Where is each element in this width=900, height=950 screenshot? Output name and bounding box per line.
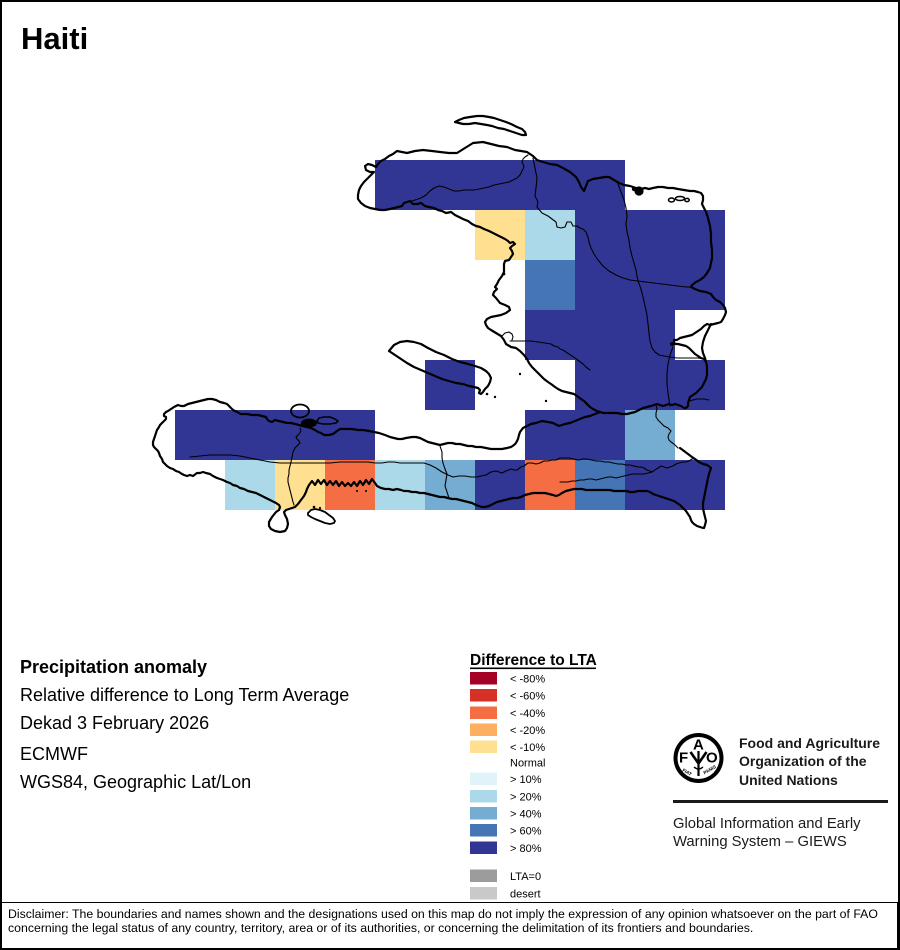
svg-text:desert: desert (510, 889, 541, 901)
svg-text:< -40%: < -40% (510, 708, 545, 720)
svg-text:> 40%: > 40% (510, 809, 542, 821)
svg-text:> 60%: > 60% (510, 826, 542, 838)
svg-text:O: O (706, 750, 718, 767)
svg-text:< -20%: < -20% (510, 725, 545, 737)
svg-text:< -60%: < -60% (510, 691, 545, 703)
svg-text:F: F (679, 750, 688, 767)
svg-text:Normal: Normal (510, 758, 545, 770)
svg-text:> 80%: > 80% (510, 843, 542, 855)
svg-text:< -10%: < -10% (510, 742, 545, 754)
svg-text:< -80%: < -80% (510, 674, 545, 686)
svg-text:A: A (693, 737, 704, 754)
svg-text:LTA=0: LTA=0 (510, 871, 541, 883)
svg-text:> 10%: > 10% (510, 774, 542, 786)
svg-text:> 20%: > 20% (510, 792, 542, 804)
svg-text:Difference to LTA: Difference to LTA (470, 652, 597, 669)
